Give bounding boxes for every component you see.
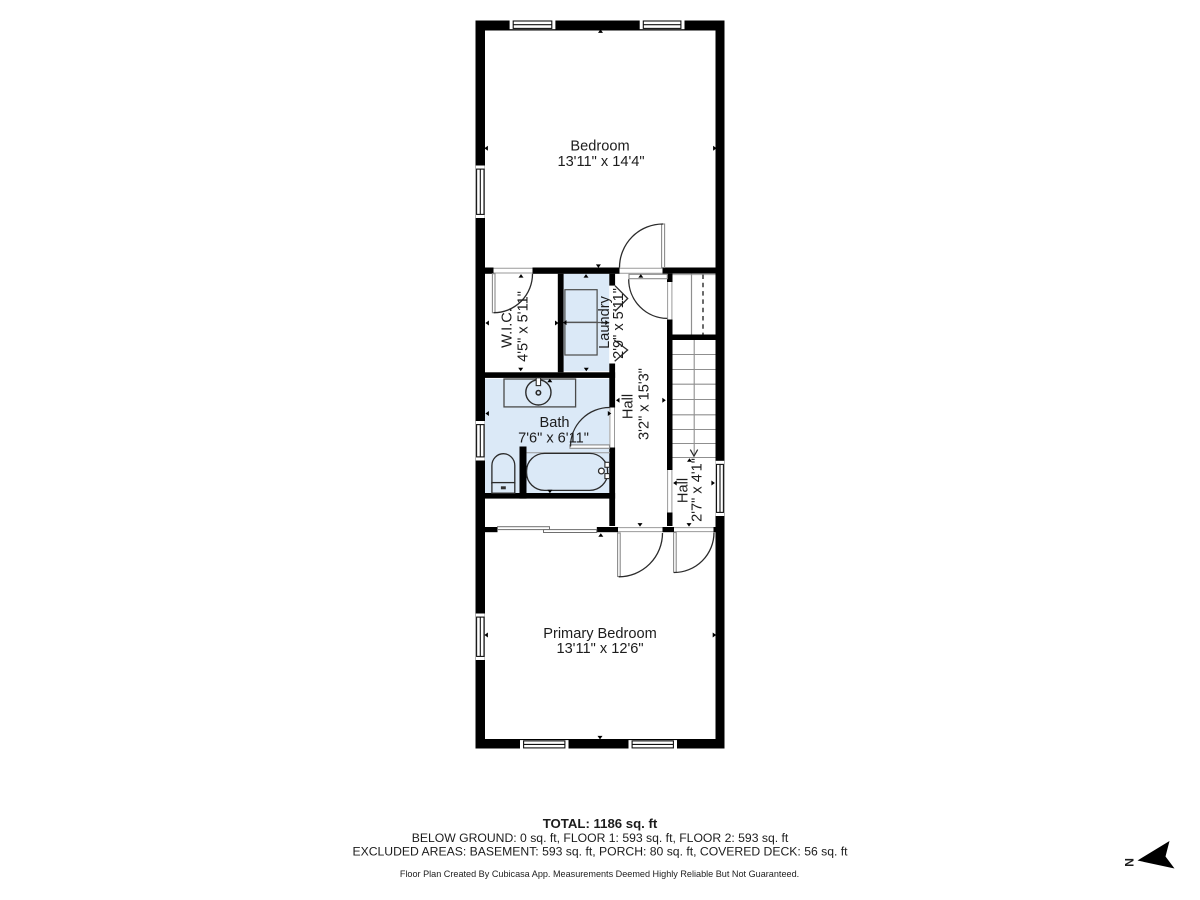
svg-text:13'11" x 12'6": 13'11" x 12'6" [556,641,643,657]
svg-text:TOTAL: 1186 sq. ft: TOTAL: 1186 sq. ft [543,816,658,831]
svg-text:3'2" x 15'3": 3'2" x 15'3" [636,368,652,440]
svg-text:Primary Bedroom: Primary Bedroom [543,626,657,642]
svg-text:2'7" x 4'1": 2'7" x 4'1" [690,458,706,522]
svg-text:7'6" x 6'11": 7'6" x 6'11" [518,431,589,447]
svg-text:EXCLUDED AREAS: BASEMENT: 593: EXCLUDED AREAS: BASEMENT: 593 sq. ft, PO… [352,844,848,858]
svg-text:2'9" x 5'11": 2'9" x 5'11" [611,288,627,359]
svg-text:4'5" x 5'11": 4'5" x 5'11" [516,291,532,362]
svg-text:13'11" x 14'4": 13'11" x 14'4" [557,154,644,170]
svg-text:N: N [1122,858,1136,867]
svg-text:Floor Plan Created By Cubicasa: Floor Plan Created By Cubicasa App. Meas… [400,869,799,879]
svg-text:BELOW GROUND: 0 sq. ft, FLOOR: BELOW GROUND: 0 sq. ft, FLOOR 1: 593 sq.… [412,831,789,845]
svg-text:Bedroom: Bedroom [570,139,629,155]
svg-text:Bath: Bath [539,415,569,431]
svg-text:W.I.C.: W.I.C. [499,308,515,348]
svg-text:Hall: Hall [621,394,637,419]
